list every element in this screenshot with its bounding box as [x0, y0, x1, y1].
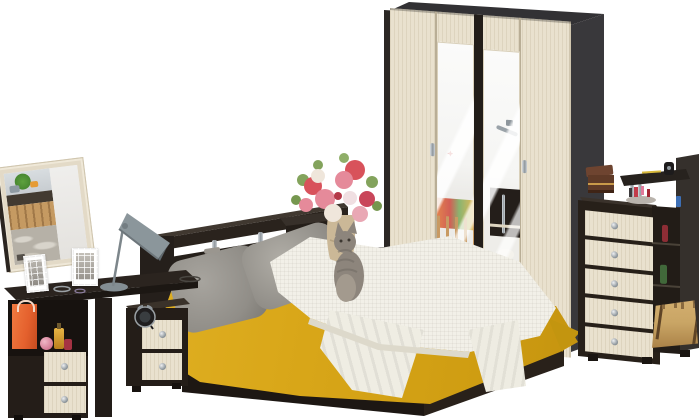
dresser-foot — [680, 350, 690, 357]
chest-of-drawers — [0, 0, 700, 420]
perfume-bottle-blue — [676, 196, 681, 207]
mini-clock — [664, 162, 674, 175]
cosmetic-bottle — [641, 186, 644, 195]
dresser-drawers — [583, 206, 653, 361]
tower-shelf — [652, 284, 680, 288]
cosmetics-tray — [626, 196, 656, 204]
dresser-drawer — [585, 239, 653, 271]
drawer-knob — [611, 251, 618, 259]
tower-shelf — [652, 242, 680, 246]
drawer-knob — [611, 222, 618, 230]
jewelry-box — [588, 175, 614, 193]
dresser-foot — [642, 357, 652, 364]
dresser-drawer — [585, 210, 653, 242]
drawer-knob — [611, 338, 618, 346]
dresser-foot — [588, 354, 598, 361]
cosmetic-bottle — [634, 187, 638, 197]
bedroom-set-photo — [0, 0, 700, 420]
dresser-drawer — [585, 297, 653, 329]
shelf-bottle-green — [660, 265, 667, 284]
cosmetic-bottle — [629, 188, 632, 197]
dresser-drawer — [585, 268, 653, 300]
drawer-knob — [611, 280, 618, 288]
cosmetic-bottle — [647, 189, 650, 197]
shelf-bottle-red — [662, 225, 668, 242]
drawer-knob — [611, 309, 618, 317]
